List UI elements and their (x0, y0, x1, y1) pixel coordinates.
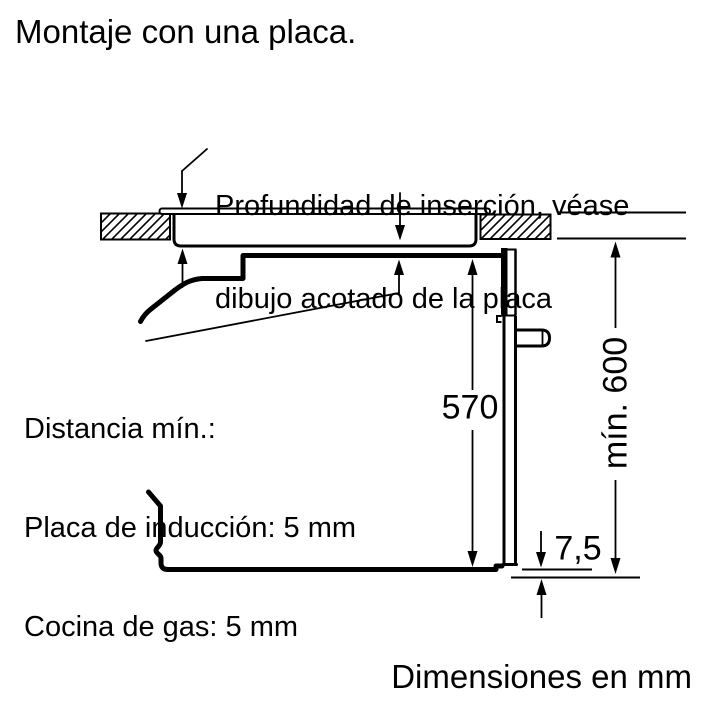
min-distance-line-2: Placa de inducción: 5 mm (24, 512, 356, 545)
min-distance-line-3: Cocina de gas: 5 mm (24, 611, 356, 644)
min-distance-callout: Distancia mín.: Placa de inducción: 5 mm… (24, 347, 356, 703)
units-note: Dimensiones en mm (391, 658, 692, 696)
dimension-label-570: 570 (442, 389, 499, 428)
dimension-label-7-5: 7,5 (554, 530, 601, 569)
min-distance-line-1: Distancia mín.: (24, 413, 356, 446)
page-title: Montaje con una placa. (15, 13, 356, 51)
worktop-left-section (101, 214, 170, 240)
diagram-canvas: Montaje con una placa. Profundidad de in… (0, 0, 703, 703)
insertion-depth-line-1: Profundidad de inserción, véase (215, 191, 629, 222)
insertion-depth-callout: Profundidad de inserción, véase dibujo a… (215, 129, 629, 377)
dimension-label-min-600: mín. 600 (597, 337, 636, 469)
insertion-depth-line-2: dibujo acotado de la placa (215, 284, 629, 315)
